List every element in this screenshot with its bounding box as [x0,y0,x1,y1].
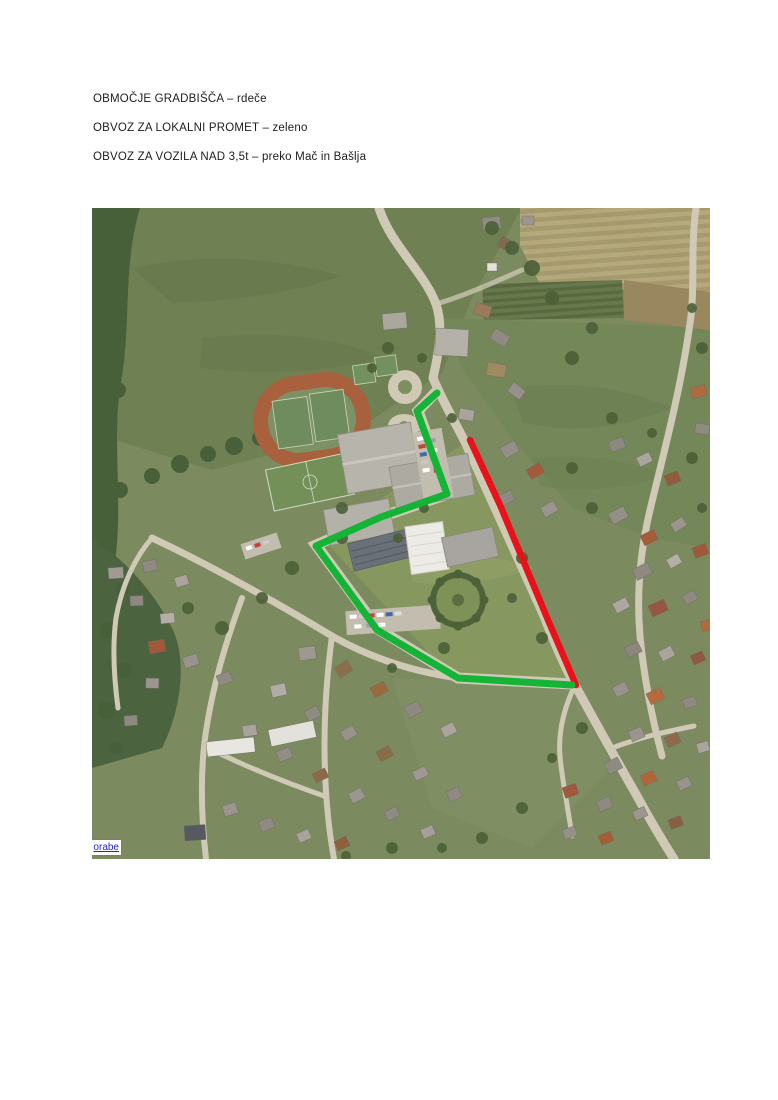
map-watermark-box: orabe [92,839,122,856]
legend-line-local-traffic: OBVOZ ZA LOKALNI PROMET – zeleno [93,122,366,135]
legend-text-block: OBMOČJE GRADBIŠČA – rdeče OBVOZ ZA LOKAL… [93,93,366,180]
white-sports-hall [405,522,449,575]
aerial-photo [92,208,710,859]
legend-line-construction-area: OBMOČJE GRADBIŠČA – rdeče [93,93,366,106]
map-watermark-link[interactable]: orabe [93,842,119,853]
aerial-map-image: orabe [92,208,710,859]
legend-line-heavy-vehicles: OBVOZ ZA VOZILA NAD 3,5t – preko Mač in … [93,151,366,164]
document-page: OBMOČJE GRADBIŠČA – rdeče OBVOZ ZA LOKAL… [0,0,778,1100]
